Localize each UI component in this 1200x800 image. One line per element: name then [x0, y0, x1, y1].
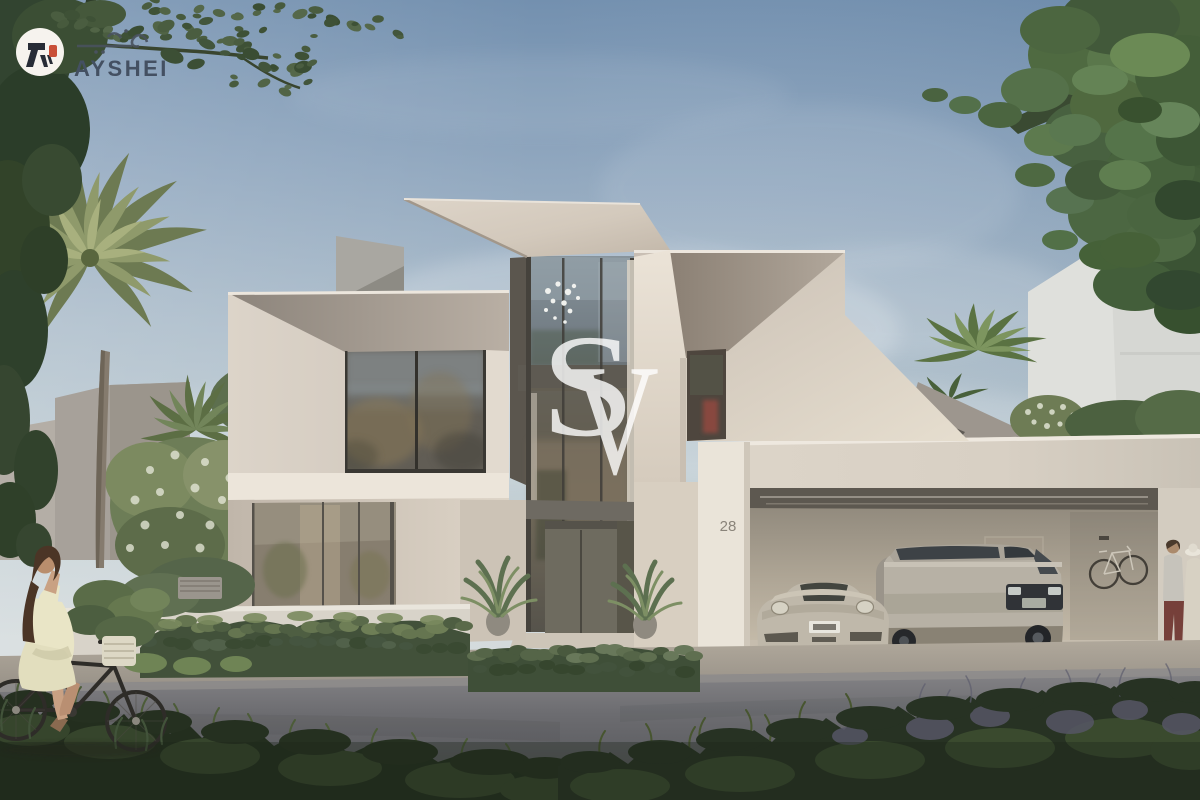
svg-text:V: V — [571, 332, 660, 508]
svg-text:28: 28 — [720, 518, 737, 535]
svg-text:AYSHEI: AYSHEI — [74, 56, 169, 81]
